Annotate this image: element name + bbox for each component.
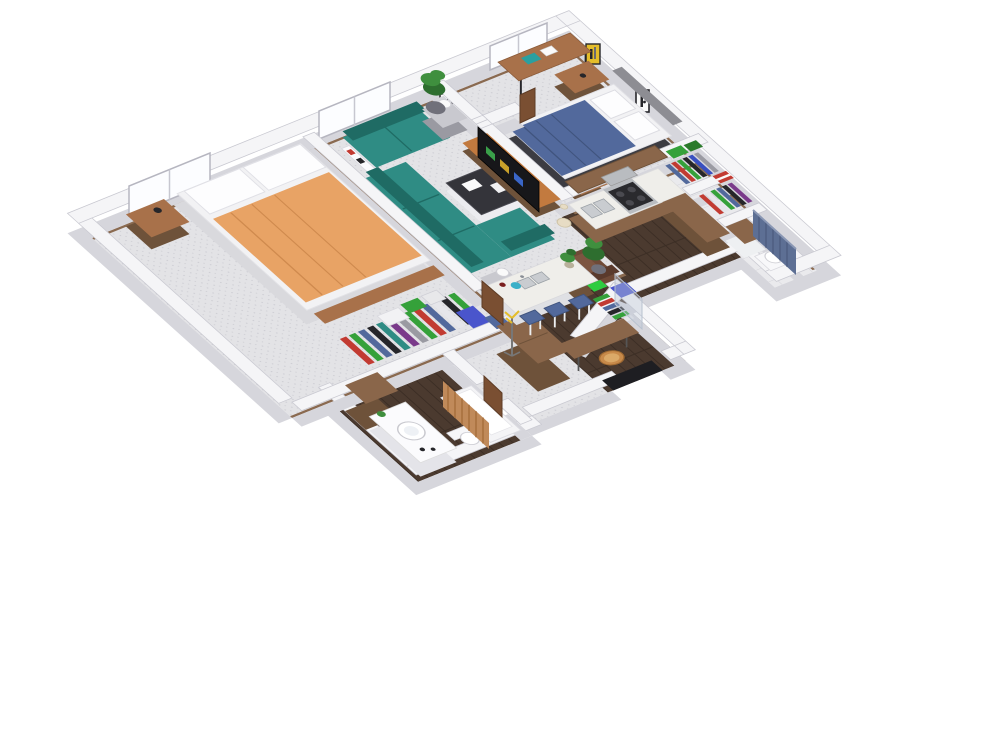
floor-plan-image: [0, 0, 1000, 732]
floor-plan-render: [0, 0, 1000, 732]
